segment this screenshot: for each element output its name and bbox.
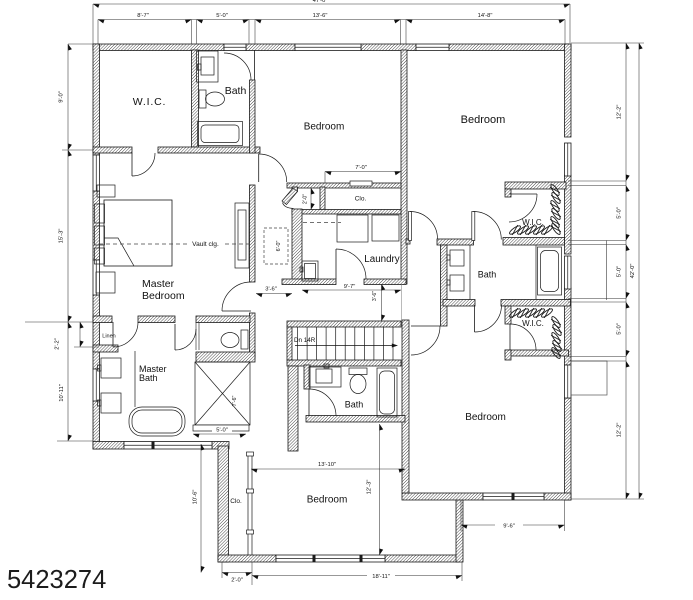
svg-text:Master: Master [142, 278, 175, 290]
svg-text:3'-6": 3'-6" [265, 287, 277, 293]
svg-text:Bedroom: Bedroom [304, 122, 345, 133]
svg-text:7'-0": 7'-0" [355, 165, 367, 171]
svg-text:Bath: Bath [139, 373, 158, 383]
svg-text:15'-3": 15'-3" [59, 229, 65, 244]
svg-text:Bath: Bath [478, 270, 497, 280]
svg-text:Vault clg.: Vault clg. [192, 241, 219, 248]
svg-text:12'-3": 12'-3" [367, 480, 373, 495]
svg-text:9'-7": 9'-7" [344, 284, 356, 290]
svg-text:Bedroom: Bedroom [142, 290, 185, 302]
svg-text:2'-0": 2'-0" [303, 194, 309, 204]
svg-text:W.I.C.: W.I.C. [522, 319, 544, 328]
svg-text:10'-6": 10'-6" [193, 490, 199, 505]
svg-text:8'-7": 8'-7" [137, 13, 149, 19]
svg-text:Bedroom: Bedroom [307, 495, 348, 506]
svg-text:Dn 14R: Dn 14R [294, 337, 316, 344]
svg-text:2'-0": 2'-0" [231, 578, 243, 584]
svg-text:Clo.: Clo. [355, 196, 367, 203]
svg-text:18'-11": 18'-11" [372, 574, 390, 580]
svg-text:5'-0": 5'-0" [617, 207, 623, 219]
svg-text:5'-0": 5'-0" [617, 266, 623, 278]
svg-text:Linen: Linen [102, 334, 115, 340]
svg-text:13'-10": 13'-10" [318, 462, 336, 468]
svg-text:Laundry: Laundry [364, 254, 400, 265]
svg-text:12'-2": 12'-2" [617, 423, 623, 438]
svg-text:W.I.C.: W.I.C. [133, 96, 166, 108]
svg-text:9'-6": 9'-6" [503, 524, 515, 530]
svg-text:Bath: Bath [225, 85, 247, 97]
svg-text:W.I.C.: W.I.C. [522, 218, 544, 227]
svg-text:3'-6": 3'-6" [372, 291, 378, 301]
svg-text:14'-8": 14'-8" [478, 13, 493, 19]
svg-text:47'-0": 47'-0" [313, 0, 328, 4]
svg-text:7'-6": 7'-6" [232, 396, 238, 407]
svg-text:Bedroom: Bedroom [465, 412, 506, 423]
svg-text:6'-0": 6'-0" [276, 241, 282, 252]
svg-text:5'-0": 5'-0" [617, 323, 623, 335]
svg-text:10'-11": 10'-11" [59, 384, 65, 402]
svg-text:Bedroom: Bedroom [461, 114, 506, 126]
svg-text:5'-0": 5'-0" [216, 13, 228, 19]
svg-text:Clo.: Clo. [230, 498, 242, 505]
svg-text:5423274: 5423274 [7, 566, 106, 594]
svg-text:9'-0": 9'-0" [59, 91, 65, 103]
svg-text:5'-0": 5'-0" [216, 428, 228, 434]
svg-text:2'-2": 2'-2" [55, 338, 61, 350]
svg-text:Bath: Bath [345, 400, 364, 410]
svg-text:42'-0": 42'-0" [630, 264, 636, 279]
svg-text:13'-6": 13'-6" [313, 13, 328, 19]
svg-text:12'-2": 12'-2" [617, 105, 623, 120]
